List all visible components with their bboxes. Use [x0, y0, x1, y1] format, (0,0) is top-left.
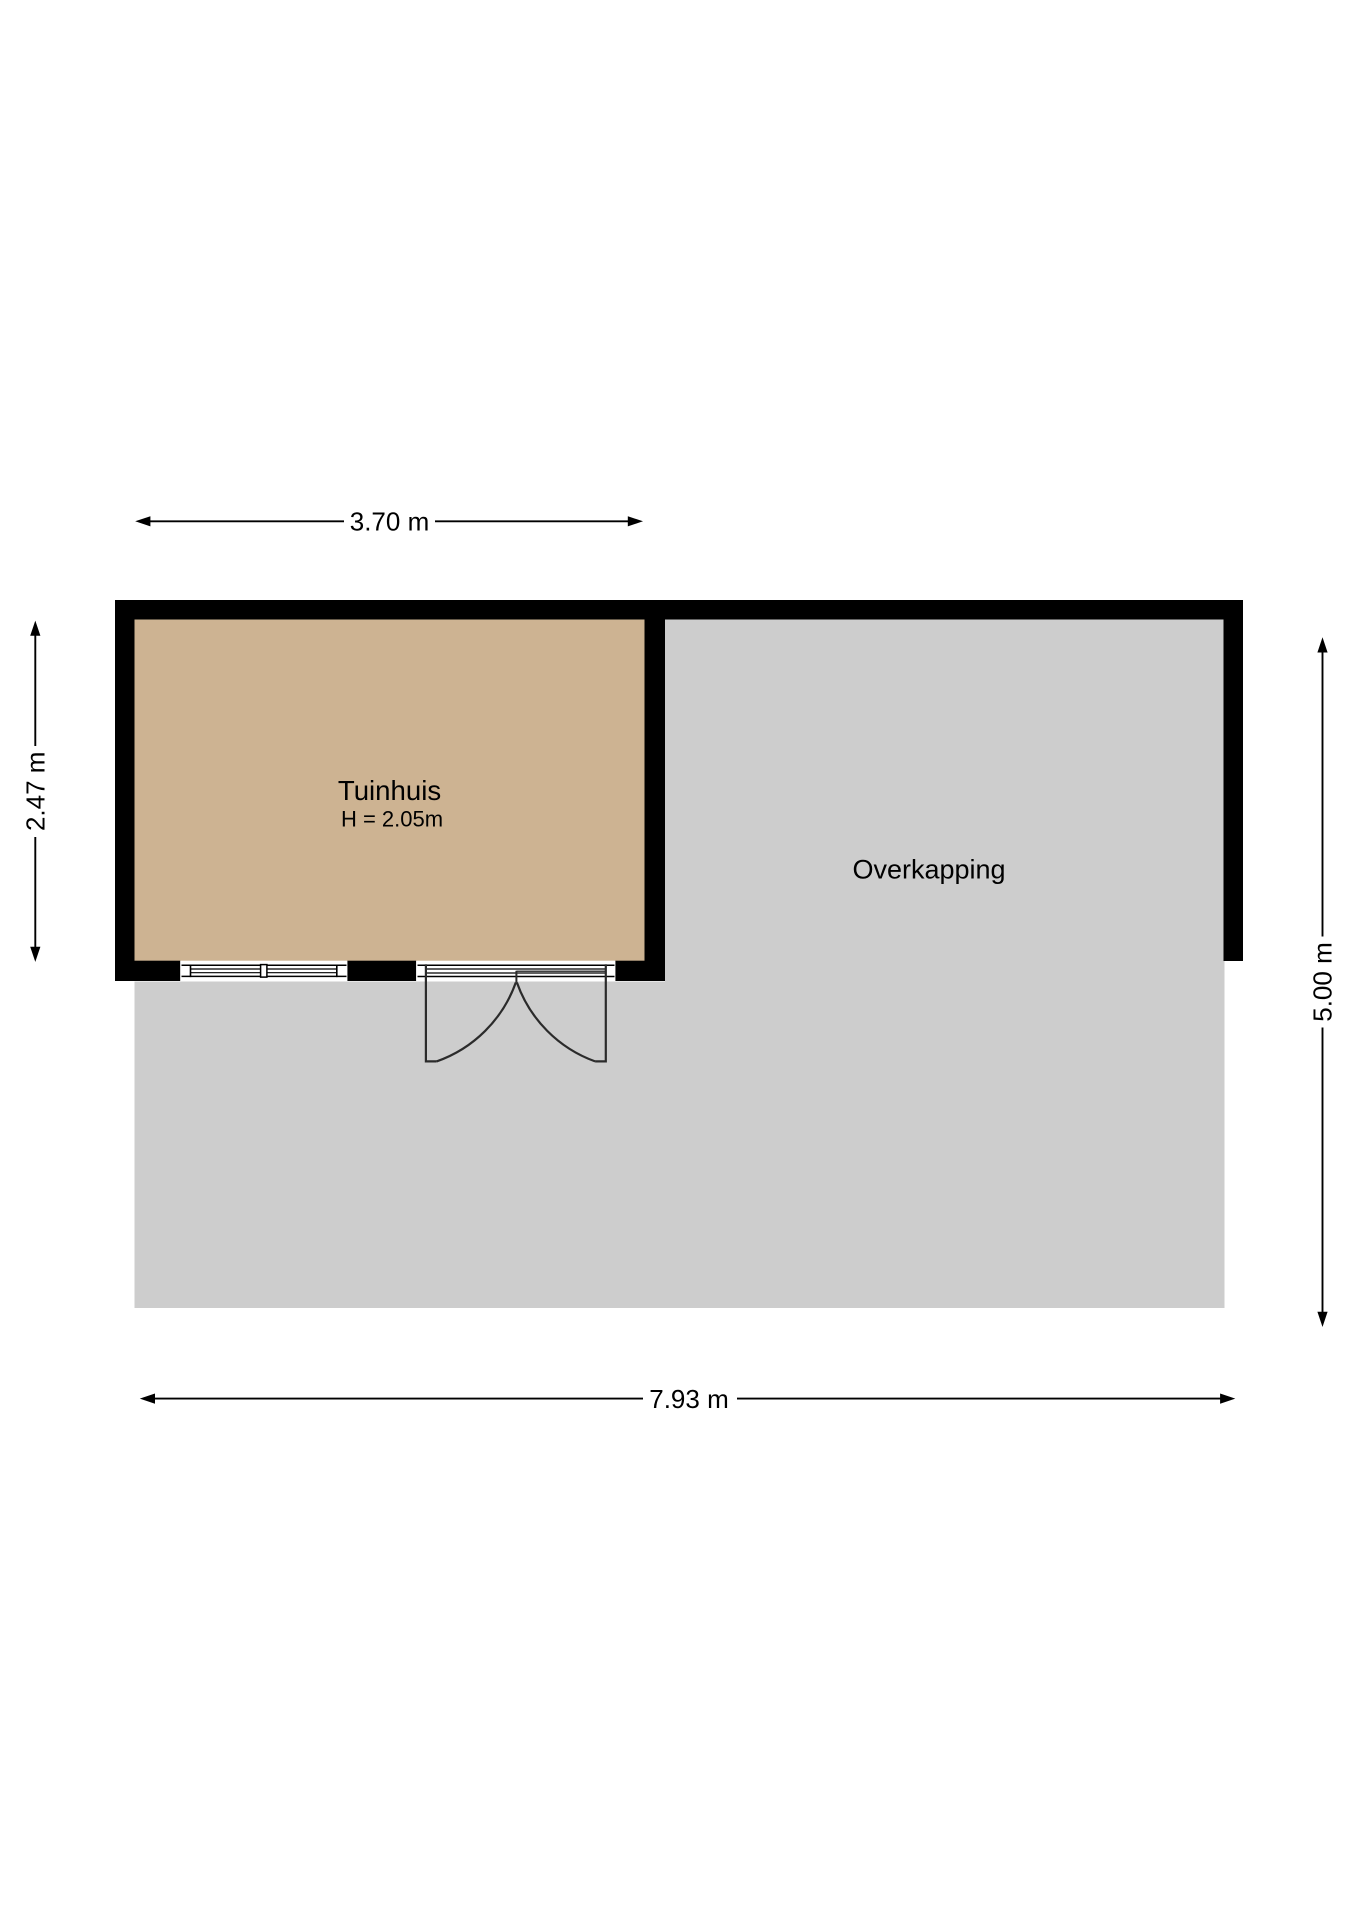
svg-text:2.47 m: 2.47 m: [21, 752, 51, 832]
svg-text:H = 2.05m: H = 2.05m: [341, 806, 443, 831]
svg-text:3.70 m: 3.70 m: [350, 507, 430, 537]
svg-text:Overkapping: Overkapping: [852, 855, 1005, 885]
svg-text:Tuinhuis: Tuinhuis: [338, 775, 441, 806]
svg-text:7.93 m: 7.93 m: [649, 1384, 729, 1414]
svg-text:5.00 m: 5.00 m: [1308, 942, 1338, 1022]
